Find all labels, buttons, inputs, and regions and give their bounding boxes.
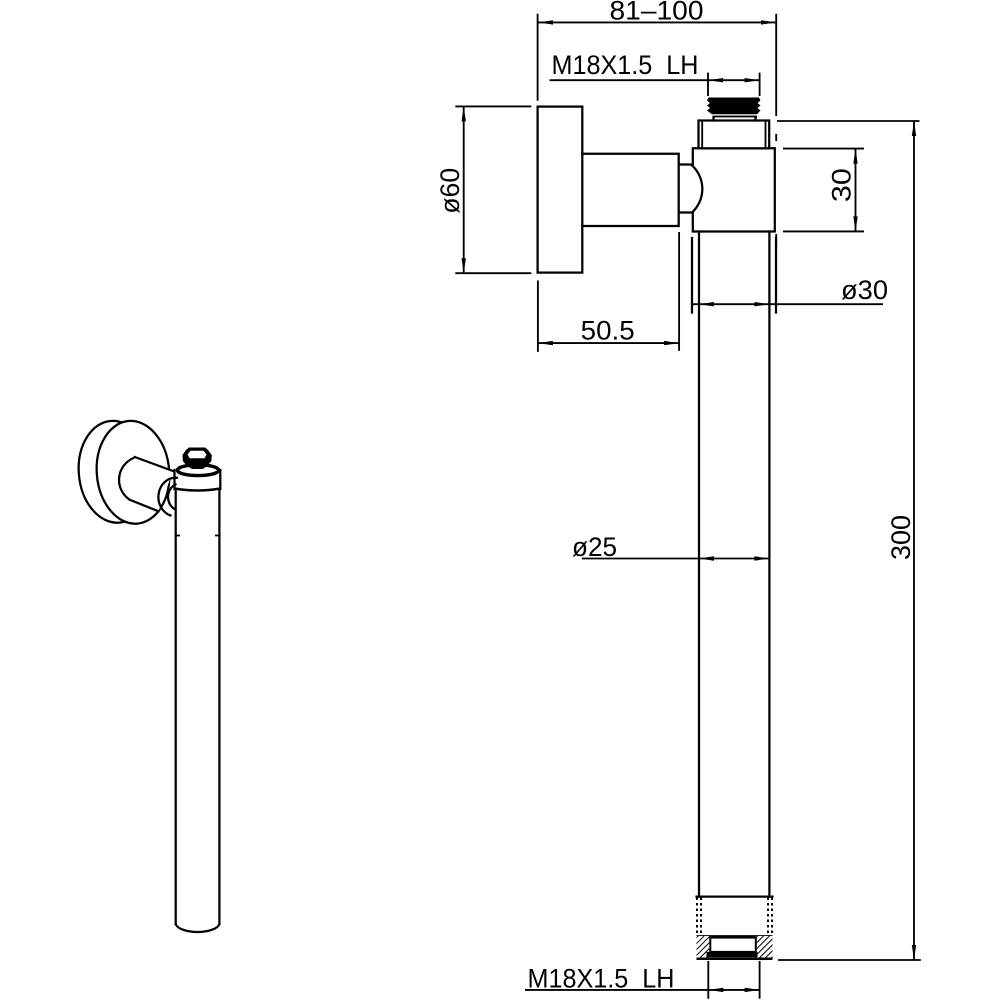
svg-text:ø30: ø30 bbox=[841, 275, 888, 305]
svg-text:ø25: ø25 bbox=[572, 532, 617, 562]
svg-text:M18X1.5 LH: M18X1.5 LH bbox=[552, 50, 699, 80]
svg-text:ø60: ø60 bbox=[435, 168, 465, 214]
svg-text:30: 30 bbox=[827, 168, 857, 202]
svg-text:50.5: 50.5 bbox=[581, 315, 635, 345]
svg-text:300: 300 bbox=[886, 515, 916, 560]
